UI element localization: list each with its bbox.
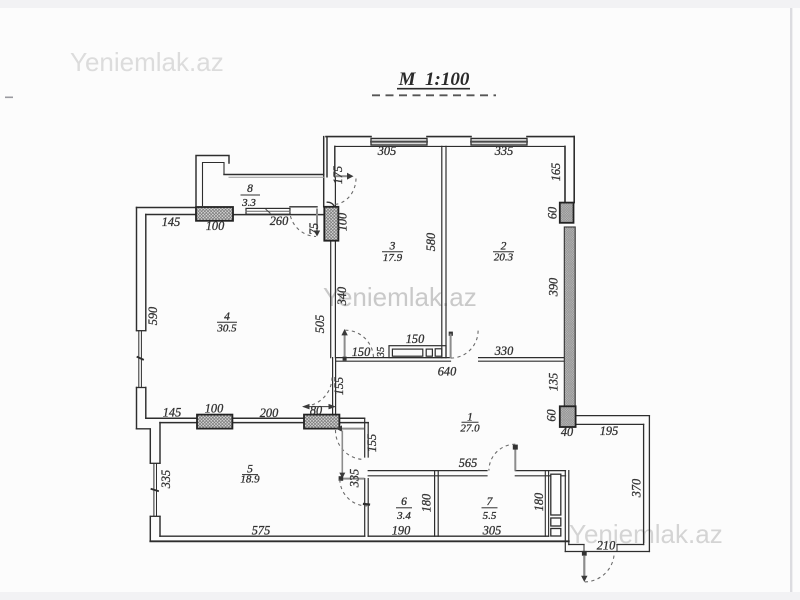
svg-text:27.0: 27.0 [460,423,480,435]
svg-text:80: 80 [310,404,322,418]
svg-text:340: 340 [335,287,349,306]
svg-text:370: 370 [630,479,644,498]
svg-text:195: 195 [600,424,618,438]
svg-text:3: 3 [389,241,396,253]
svg-text:200: 200 [260,406,278,420]
svg-text:305: 305 [377,144,396,158]
svg-text:Yeniemlak.az: Yeniemlak.az [569,519,723,549]
svg-text:60: 60 [546,207,560,219]
svg-text:6: 6 [401,496,407,508]
svg-text:330: 330 [494,344,513,358]
svg-text:M 1:100: M 1:100 [398,69,470,90]
svg-text:640: 640 [438,365,456,379]
svg-text:565: 565 [459,456,477,470]
svg-text:165: 165 [549,163,563,181]
svg-text:75: 75 [307,223,321,235]
svg-text:590: 590 [146,307,160,325]
svg-text:60: 60 [545,409,559,421]
svg-text:100: 100 [206,219,224,233]
svg-text:5.5: 5.5 [483,510,497,522]
svg-text:335: 335 [494,144,513,158]
svg-text:575: 575 [252,524,270,538]
svg-text:20.3: 20.3 [494,252,514,264]
svg-text:260: 260 [270,214,288,228]
svg-text:210: 210 [597,539,615,553]
svg-text:145: 145 [163,406,181,420]
svg-text:305: 305 [482,524,501,538]
svg-text:40: 40 [561,425,573,439]
svg-text:18.9: 18.9 [240,474,260,486]
svg-text:505: 505 [313,315,327,333]
svg-text:155: 155 [365,434,379,452]
svg-text:35: 35 [376,347,387,359]
svg-text:8: 8 [247,183,253,195]
svg-text:3.3: 3.3 [241,197,256,209]
svg-text:150: 150 [352,345,370,359]
svg-text:Yeniemlak.az: Yeniemlak.az [70,47,224,77]
svg-text:180: 180 [532,493,546,511]
svg-text:135: 135 [547,373,561,391]
svg-text:30.5: 30.5 [216,323,237,335]
svg-text:145: 145 [162,215,180,229]
svg-text:335: 335 [348,469,362,488]
svg-text:4: 4 [224,311,230,323]
svg-text:3.4: 3.4 [396,510,411,522]
svg-text:17.9: 17.9 [383,252,403,264]
svg-text:180: 180 [420,494,434,512]
svg-text:100: 100 [336,213,350,231]
svg-text:190: 190 [392,524,410,538]
svg-text:155: 155 [332,377,346,395]
svg-text:580: 580 [424,233,438,251]
svg-text:390: 390 [547,278,561,297]
svg-text:100: 100 [205,402,223,416]
svg-text:335: 335 [159,470,173,489]
svg-text:150: 150 [406,332,424,346]
svg-text:175: 175 [331,166,345,184]
